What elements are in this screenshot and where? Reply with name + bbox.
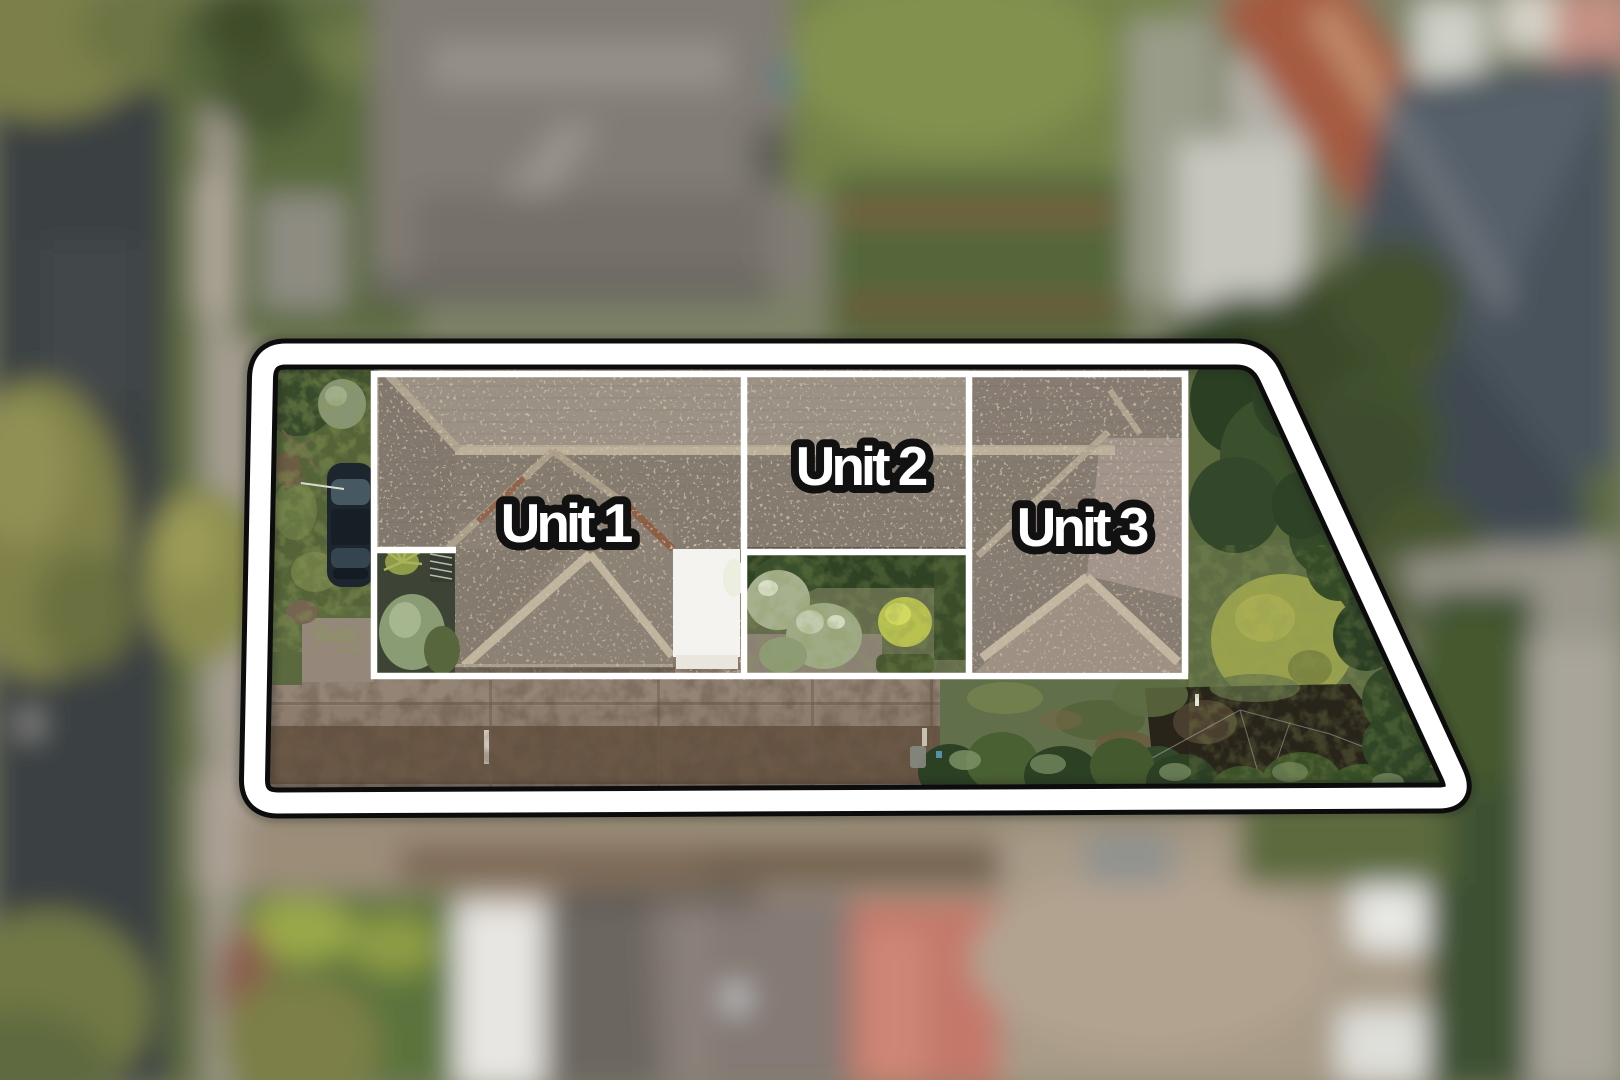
svg-text:Unit 2: Unit 2 — [796, 435, 927, 497]
svg-text:Unit 1: Unit 1 — [501, 492, 633, 554]
svg-text:Unit 3: Unit 3 — [1017, 496, 1148, 558]
